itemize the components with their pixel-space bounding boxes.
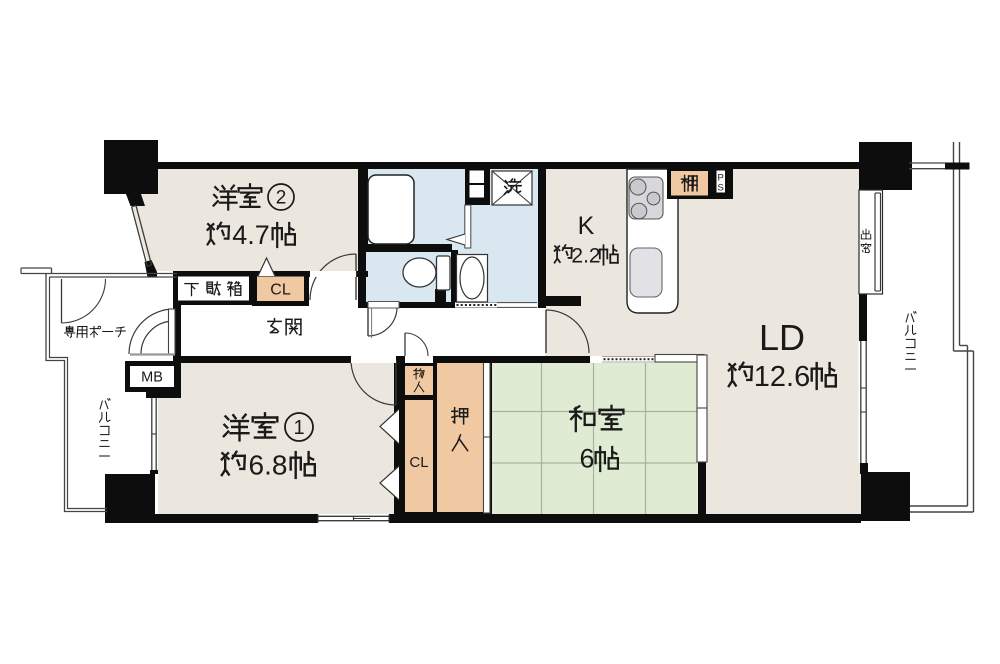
- svg-text:2: 2: [276, 188, 287, 209]
- svg-text:S: S: [718, 183, 724, 194]
- svg-text:12.6: 12.6: [754, 361, 810, 393]
- svg-text:1: 1: [293, 417, 304, 439]
- svg-text:6.8: 6.8: [249, 450, 288, 481]
- svg-text:CL: CL: [409, 454, 428, 471]
- svg-text:6: 6: [579, 444, 594, 474]
- svg-text:MB: MB: [141, 370, 163, 386]
- svg-text:2.2: 2.2: [571, 245, 600, 268]
- svg-text:CL: CL: [270, 282, 291, 299]
- svg-text:K: K: [578, 212, 595, 240]
- svg-text:LD: LD: [759, 317, 805, 358]
- svg-text:4.7: 4.7: [232, 220, 270, 250]
